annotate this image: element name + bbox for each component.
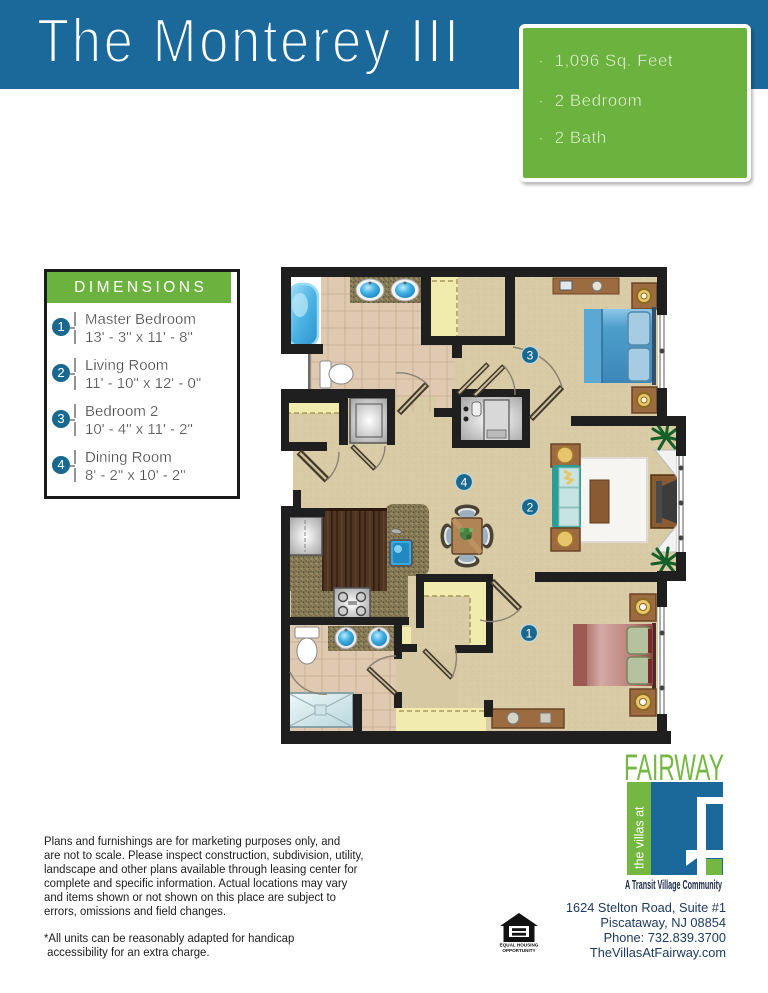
svg-text:EQUAL HOUSING: EQUAL HOUSING <box>500 943 539 948</box>
svg-text:1: 1 <box>526 627 533 641</box>
svg-text:FAIRWAY: FAIRWAY <box>624 747 724 788</box>
svg-text:OPPORTUNITY: OPPORTUNITY <box>502 948 535 953</box>
svg-text:4: 4 <box>461 476 468 490</box>
svg-text:2: 2 <box>527 501 534 515</box>
svg-text:3: 3 <box>527 349 534 363</box>
svg-text:the villas at: the villas at <box>633 806 647 869</box>
svg-text:A Transit Village Community: A Transit Village Community <box>625 878 722 892</box>
